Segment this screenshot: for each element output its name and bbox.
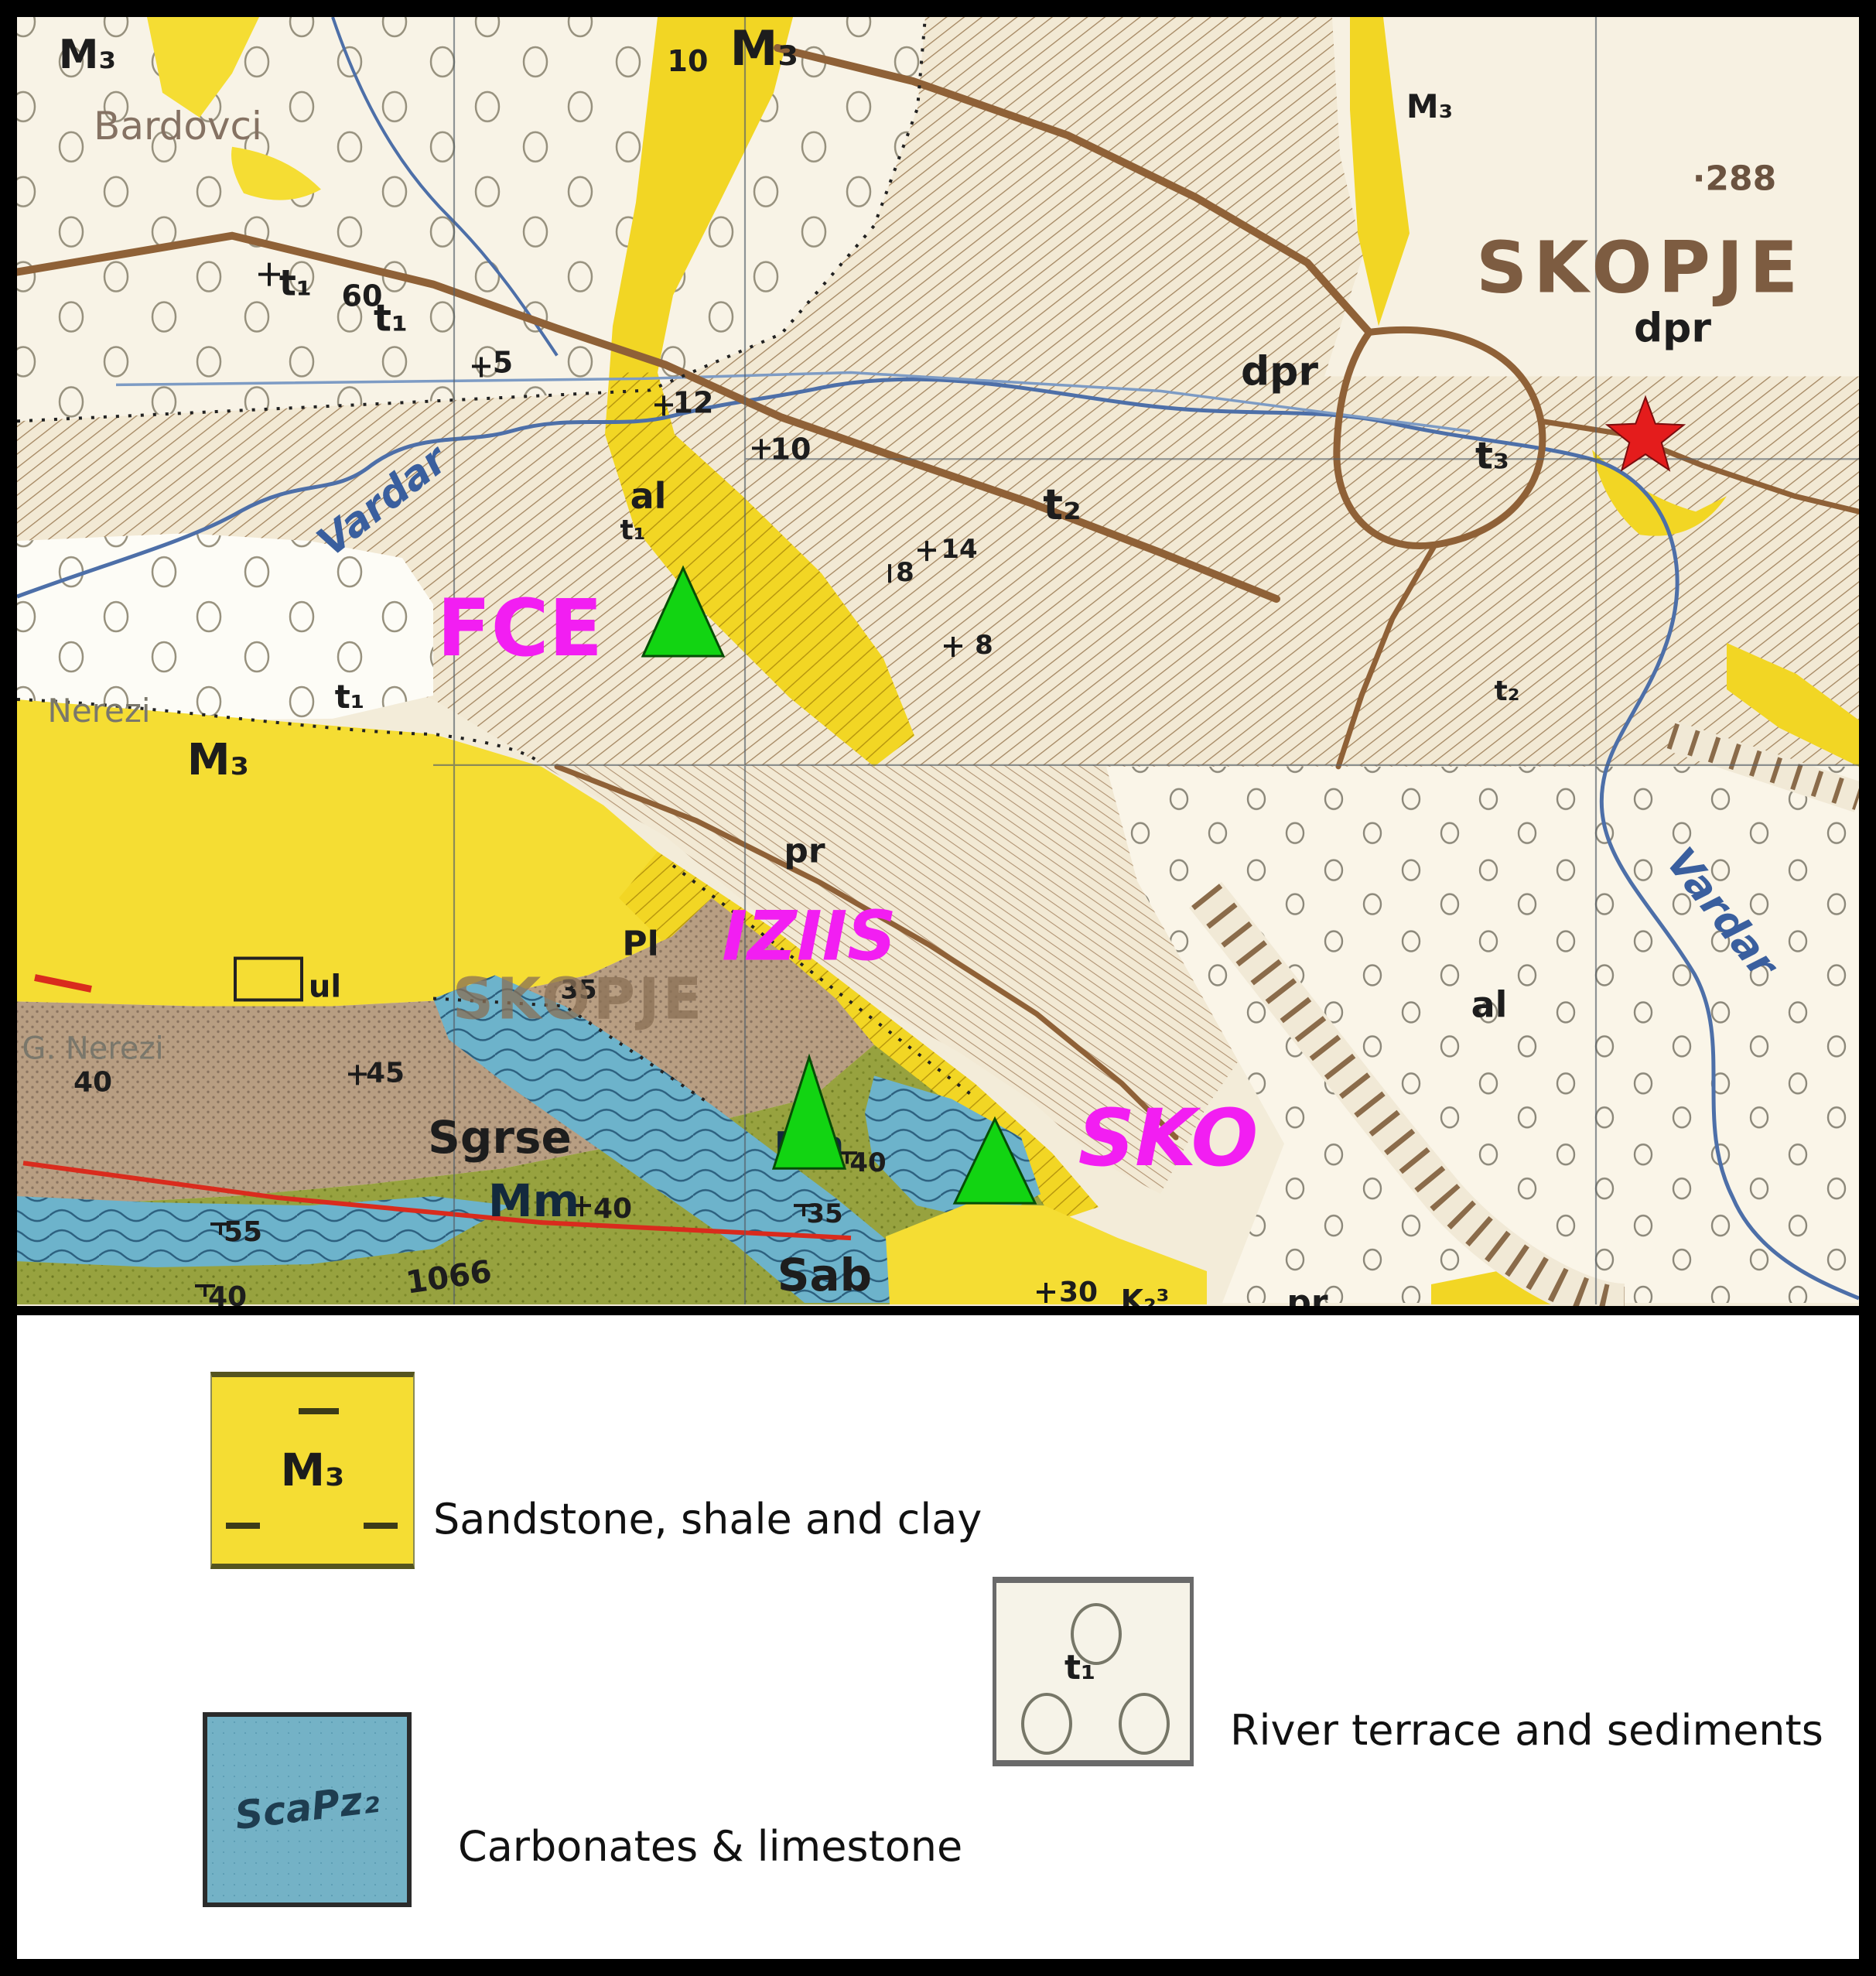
map-label: K₂³ xyxy=(1121,1284,1170,1306)
map-label: 55 xyxy=(224,1216,262,1248)
map-label: t₂ xyxy=(1043,480,1081,529)
m3-dash-icon xyxy=(226,1523,260,1529)
map-label: 12 xyxy=(673,385,714,419)
map-label: t₁ xyxy=(335,678,364,716)
map-label: 35 xyxy=(806,1198,842,1229)
map-label: 40 xyxy=(208,1281,247,1306)
legend-symbol-m3: M₃ xyxy=(212,1444,413,1496)
legend-swatch-t1: t₁ xyxy=(993,1577,1194,1766)
map-label: Sgrse xyxy=(428,1111,572,1164)
map-label: Pl xyxy=(622,925,658,964)
map-label: t₁ xyxy=(279,262,312,304)
map-label: M₃ xyxy=(187,735,249,785)
map-label: M₃ xyxy=(59,32,117,78)
legend-symbol-t1: t₁ xyxy=(1064,1648,1095,1687)
map-label: dpr xyxy=(1241,348,1318,395)
map-label: M₃ xyxy=(1406,87,1453,125)
station-label: FCE xyxy=(437,583,603,675)
map-label: 40 xyxy=(593,1193,632,1225)
geological-map: M₃Bardovcit₁605Vardar10M₃1210alt₁t₁8148M… xyxy=(17,17,1859,1315)
map-label: ·288 xyxy=(1693,159,1777,199)
map-canvas: M₃Bardovcit₁605Vardar10M₃1210alt₁t₁8148M… xyxy=(17,17,1859,1306)
m3-dash-icon xyxy=(364,1523,398,1529)
map-label: al xyxy=(1471,983,1508,1025)
legend-label-t1: River terrace and sediments xyxy=(1230,1706,1823,1755)
legend-label-m3: Sandstone, shale and clay xyxy=(433,1495,982,1544)
map-label: SKOPJE xyxy=(453,966,705,1032)
terrace-circle-icon xyxy=(1021,1693,1072,1755)
map-label: t₂ xyxy=(1495,675,1520,707)
figure-frame: M₃Bardovcit₁605Vardar10M₃1210alt₁t₁8148M… xyxy=(0,0,1876,1976)
map-label: 30 xyxy=(1059,1277,1098,1306)
map-label: Sab xyxy=(777,1249,872,1301)
map-label: dpr xyxy=(1634,306,1711,352)
map-label: 40 xyxy=(73,1066,112,1098)
map-label: G. Nerezi xyxy=(22,1031,163,1066)
map-label: M₃ xyxy=(730,20,799,77)
station-label: SKO xyxy=(1078,1092,1259,1185)
legend-swatch-scapz: ScaPz₂ xyxy=(203,1712,412,1907)
map-label: 45 xyxy=(366,1057,405,1089)
map-label: SKOPJE xyxy=(1476,227,1804,309)
map-label: 10 xyxy=(771,432,812,466)
map-label: t₁ xyxy=(374,297,408,340)
map-label: pr xyxy=(784,832,825,871)
map-label: Mm xyxy=(488,1174,579,1227)
map-legend: M₃ Sandstone, shale and clay t₁ River te… xyxy=(17,1315,1859,1959)
map-label: 40 xyxy=(849,1147,886,1178)
map-label: 10 xyxy=(668,44,709,78)
map-label: 8 xyxy=(896,557,914,588)
map-label: Bardovci xyxy=(94,104,262,149)
map-label: ul xyxy=(309,969,341,1005)
map-label: t₁ xyxy=(620,515,646,546)
legend-swatch-m3: M₃ xyxy=(210,1372,415,1569)
station-label: IZIIS xyxy=(722,897,896,976)
map-label: 8 xyxy=(975,630,993,661)
map-label: al xyxy=(630,475,667,517)
legend-label-scapz: Carbonates & limestone xyxy=(458,1822,962,1871)
map-label: 5 xyxy=(493,345,513,379)
terrace-circle-icon xyxy=(1119,1693,1170,1755)
map-label: pr xyxy=(1287,1283,1328,1306)
map-label: 14 xyxy=(941,534,977,565)
legend-symbol-scapz: ScaPz₂ xyxy=(205,1773,408,1841)
map-label: Nerezi xyxy=(47,692,150,730)
m3-dash-icon xyxy=(299,1408,339,1414)
map-label: t₃ xyxy=(1475,434,1509,477)
